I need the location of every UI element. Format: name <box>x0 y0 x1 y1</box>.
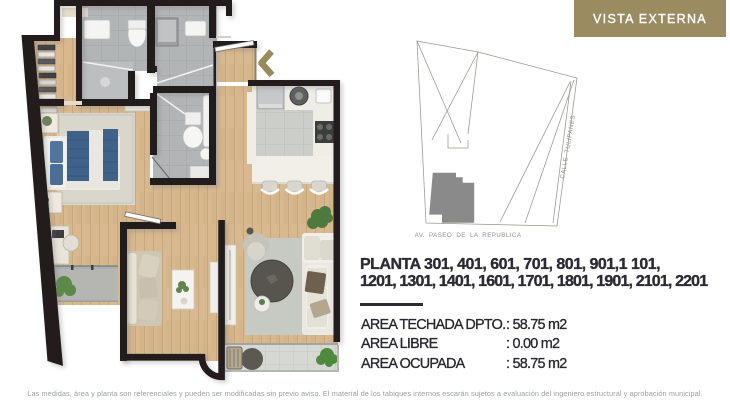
svg-text:AV. PASEO DE LA REPUBLICA: AV. PASEO DE LA REPUBLICA <box>415 232 522 239</box>
svg-text:CALLE TULIPANES: CALLE TULIPANES <box>559 114 577 179</box>
